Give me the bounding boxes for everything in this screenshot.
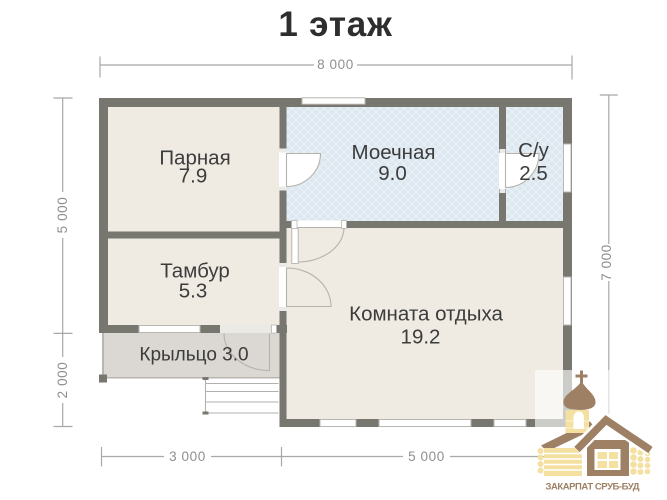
- svg-text:ЗАКАРПАТ СРУБ-БУД: ЗАКАРПАТ СРУБ-БУД: [546, 482, 640, 493]
- svg-text:1 этаж: 1 этаж: [278, 5, 393, 44]
- svg-text:2 000: 2 000: [55, 362, 70, 399]
- svg-text:7 000: 7 000: [599, 244, 614, 281]
- svg-text:7.9: 7.9: [179, 165, 208, 188]
- svg-text:Крыльцо 3.0: Крыльцо 3.0: [139, 345, 248, 366]
- svg-text:9.0: 9.0: [378, 162, 407, 185]
- svg-text:С/у: С/у: [518, 139, 550, 162]
- svg-text:5.3: 5.3: [179, 280, 208, 303]
- svg-text:2.5: 2.5: [519, 162, 548, 185]
- svg-text:5 000: 5 000: [55, 197, 70, 234]
- svg-text:5 000: 5 000: [408, 449, 445, 464]
- svg-text:8 000: 8 000: [317, 57, 354, 72]
- svg-text:19.2: 19.2: [401, 326, 441, 349]
- svg-text:Моечная: Моечная: [352, 141, 436, 164]
- svg-text:3 000: 3 000: [169, 449, 206, 464]
- svg-text:Комната отдыха: Комната отдыха: [349, 303, 503, 326]
